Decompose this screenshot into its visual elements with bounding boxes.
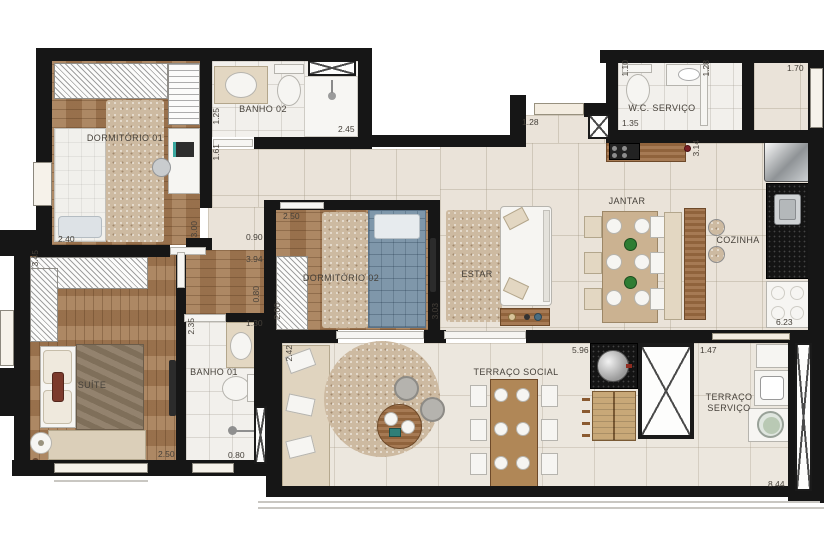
table-plant xyxy=(624,238,637,251)
grill-handle xyxy=(626,364,632,368)
wall xyxy=(200,48,212,208)
wall xyxy=(36,245,170,257)
floor-hall-lower xyxy=(208,207,266,250)
skewer xyxy=(582,422,590,425)
wc-toilet xyxy=(626,74,650,106)
dorm01-laptop xyxy=(173,142,194,157)
stool xyxy=(708,246,725,263)
side-table xyxy=(394,376,419,401)
wall xyxy=(14,252,30,462)
tanque-basin xyxy=(760,376,784,400)
skewer xyxy=(582,434,590,437)
table-plant xyxy=(624,276,637,289)
wall xyxy=(742,55,754,142)
place-setting xyxy=(384,412,398,426)
banho02-sink xyxy=(225,72,257,98)
window xyxy=(0,310,14,366)
stove-burner xyxy=(771,286,785,300)
place-setting xyxy=(516,456,530,470)
room-label-banho-01: BANHO 01 xyxy=(174,367,254,378)
room-label-banho-02: BANHO 02 xyxy=(223,104,303,115)
dimension-label: 3.00 xyxy=(189,221,199,238)
console-decor xyxy=(524,314,530,320)
dorm01-shelves xyxy=(168,63,200,125)
place-setting xyxy=(606,254,622,270)
cooktop-burner xyxy=(612,146,617,151)
banho01-toilet xyxy=(222,376,250,401)
dimension-label: 8.44 xyxy=(768,479,785,489)
wall xyxy=(266,486,794,497)
dimension-label: 1.35 xyxy=(622,118,639,128)
wall xyxy=(600,50,824,63)
room-label-terraco-servico: TERRAÇO SERVIÇO xyxy=(696,392,762,415)
banho02-toilet-tank xyxy=(274,64,304,74)
sliding-door xyxy=(336,331,424,339)
dimension-label: 1.28 xyxy=(522,117,539,127)
place-setting xyxy=(401,420,415,434)
terrace-railing xyxy=(258,501,820,503)
banho02-shower-arm xyxy=(331,80,333,93)
banho02-toilet xyxy=(277,75,301,106)
cooktop-burner xyxy=(622,146,627,151)
dimension-label: 2.50 xyxy=(283,211,300,221)
wall xyxy=(358,48,372,147)
dimension-label: 3.94 xyxy=(246,254,263,264)
terraco-chair xyxy=(541,385,558,407)
dimension-label: 1.30 xyxy=(246,318,263,328)
stove-burner xyxy=(790,286,804,300)
suite-wardrobe-left xyxy=(30,268,58,342)
window xyxy=(192,463,234,473)
window-louver xyxy=(795,343,812,491)
wall xyxy=(264,330,338,343)
floor-hall xyxy=(212,149,440,207)
terraco-chair xyxy=(470,453,487,475)
suite-bed-runner xyxy=(48,430,146,460)
place-setting xyxy=(634,254,650,270)
stool xyxy=(708,219,725,236)
jantar-chair xyxy=(584,216,602,238)
dimension-label: 1.10 xyxy=(620,60,630,77)
wc-sink xyxy=(678,68,700,81)
window-sill xyxy=(54,480,148,482)
place-setting xyxy=(606,290,622,306)
dimension-label: 3.14 xyxy=(691,140,701,157)
island-bench xyxy=(664,212,682,320)
window xyxy=(810,68,823,128)
console-decor xyxy=(534,313,542,321)
place-setting xyxy=(494,388,508,402)
dimension-label: 6.23 xyxy=(776,317,793,327)
dorm01-wardrobe xyxy=(54,63,168,99)
place-setting xyxy=(516,388,530,402)
door-dormitorio-01 xyxy=(170,247,206,255)
wall xyxy=(372,135,512,147)
dimension-label: 2.40 xyxy=(58,234,75,244)
washer-drum xyxy=(763,417,780,434)
sliding-door xyxy=(444,331,526,339)
room-label-dormitorio-02: DORMITÓRIO 02 xyxy=(291,273,391,284)
servico-shelf xyxy=(756,344,790,368)
place-setting xyxy=(606,218,622,234)
kitchen-sink-basin xyxy=(779,199,796,220)
jantar-chair xyxy=(584,252,602,274)
room-label-cozinha: COZINHA xyxy=(698,235,778,246)
dimension-label: 3.45 xyxy=(30,250,40,267)
dimension-label: 2.42 xyxy=(284,345,294,362)
dimension-label: 5.96 xyxy=(572,345,589,355)
dimension-label: 2.50 xyxy=(158,449,175,459)
terraco-round-table xyxy=(377,404,422,449)
dimension-label: 1.61 xyxy=(211,144,221,161)
wall xyxy=(266,343,282,488)
terraco-chair xyxy=(541,453,558,475)
terraco-chair xyxy=(541,419,558,441)
side-table xyxy=(420,397,445,422)
cooktop-burner xyxy=(612,153,617,158)
room-label-estar: ESTAR xyxy=(437,269,517,280)
skewer xyxy=(582,398,590,401)
shaft-small xyxy=(588,114,610,139)
banho02-towel-rack xyxy=(308,60,356,76)
wall xyxy=(36,48,52,162)
door-terraco-servico xyxy=(712,333,790,340)
wall xyxy=(0,368,14,416)
place-setting xyxy=(516,422,530,436)
window-louver xyxy=(254,406,267,464)
estar-rug xyxy=(446,210,502,322)
window xyxy=(33,162,52,206)
churrasqueira-cabinet xyxy=(592,391,636,441)
table-decor xyxy=(389,428,401,437)
cooktop-burner xyxy=(622,153,627,158)
room-label-wc-servico: W.C. SERVIÇO xyxy=(612,103,712,114)
entry-door xyxy=(534,103,584,115)
jantar-chair xyxy=(584,288,602,310)
door-suite xyxy=(177,252,185,288)
dimension-label: 1.70 xyxy=(787,63,804,73)
wall xyxy=(424,330,446,343)
dimension-label: 1.25 xyxy=(211,108,221,125)
wall xyxy=(254,137,372,149)
dimension-label: 3.03 xyxy=(430,303,440,320)
console-decor xyxy=(508,313,516,321)
dorm02-pillow xyxy=(374,214,420,239)
banho02-shower-head xyxy=(328,92,336,100)
window xyxy=(54,463,148,473)
banho01-sink xyxy=(230,332,252,360)
room-label-terraco-social: TERRAÇO SOCIAL xyxy=(456,367,576,378)
skewer xyxy=(582,410,590,413)
floor-plan: DORMITÓRIO 01 BANHO 02 W.C. SERVIÇO JANT… xyxy=(0,0,840,538)
place-setting xyxy=(494,456,508,470)
dimension-label: 0.90 xyxy=(246,232,263,242)
place-setting xyxy=(494,422,508,436)
shaft xyxy=(638,343,694,439)
dimension-label: 0.80 xyxy=(251,286,261,303)
suite-lamp-bulb xyxy=(38,440,44,446)
room-label-jantar: JANTAR xyxy=(587,196,667,207)
wall xyxy=(526,330,690,343)
dimension-label: 2.45 xyxy=(338,124,355,134)
dimension-label: 1.28 xyxy=(701,60,711,77)
fridge xyxy=(764,141,810,182)
terraco-chair xyxy=(470,385,487,407)
dimension-label: 1.47 xyxy=(700,345,717,355)
wall xyxy=(606,130,824,143)
room-label-suite: SUÍTE xyxy=(52,380,132,391)
room-label-dormitorio-01: DORMITÓRIO 01 xyxy=(75,133,175,144)
estar-sofa-back xyxy=(543,210,550,302)
dimension-label: 0.80 xyxy=(228,450,245,460)
place-setting xyxy=(634,290,650,306)
door-dormitorio-02 xyxy=(280,202,324,209)
terrace-railing xyxy=(258,507,824,509)
place-setting xyxy=(634,218,650,234)
dimension-label: 2.35 xyxy=(186,318,196,335)
tv-estar xyxy=(430,238,436,292)
dimension-label: 2.00 xyxy=(272,303,282,320)
island-counter xyxy=(684,208,706,320)
terraco-chair xyxy=(470,419,487,441)
wine-bottle xyxy=(684,145,691,152)
dorm02-rug xyxy=(322,212,368,328)
churrasqueira-grill xyxy=(597,350,629,382)
dorm01-chair xyxy=(152,158,171,177)
